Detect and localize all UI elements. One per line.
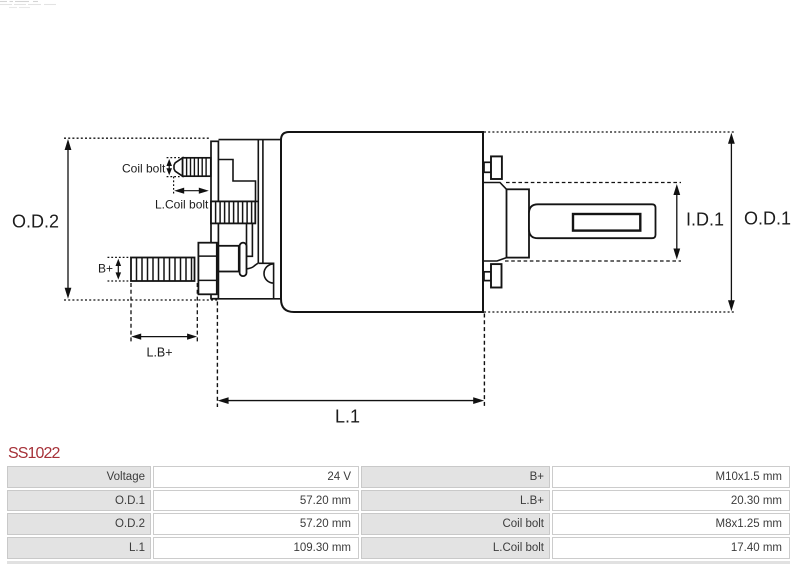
svg-text:L.Coil bolt: L.Coil bolt — [155, 198, 209, 212]
svg-text:Coil bolt: Coil bolt — [122, 162, 166, 176]
svg-text:O.D.2: O.D.2 — [12, 212, 59, 232]
svg-text:I.D.1: I.D.1 — [686, 210, 724, 230]
svg-text:L.1: L.1 — [335, 407, 360, 427]
svg-text:O.D.1: O.D.1 — [744, 209, 791, 229]
svg-text:B+: B+ — [98, 261, 113, 275]
svg-text:L.B+: L.B+ — [147, 346, 173, 360]
